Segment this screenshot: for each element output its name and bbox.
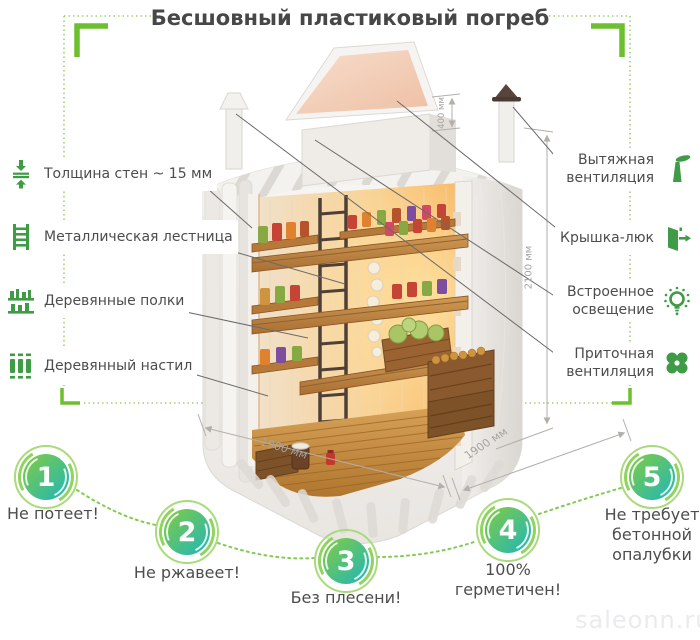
- feature-label: Встроенное освещение: [558, 283, 654, 319]
- feature-label: Толщина стен ~ 15 мм: [44, 165, 212, 183]
- watermark: saleonn.ru: [575, 606, 700, 634]
- feature-label: Крышка-люк: [560, 229, 654, 247]
- feature-shelves: Деревянные полки: [6, 284, 189, 318]
- benefit-label-1: Не потеет!: [7, 504, 99, 524]
- exhaust-vent-icon: [662, 154, 692, 184]
- feature-wall-thickness: Толщина стен ~ 15 мм: [6, 157, 217, 191]
- feature-label: Вытяжная вентиляция: [558, 151, 654, 187]
- feature-hatch-door: Крышка-люк: [555, 221, 692, 255]
- benefit-circle-4: 4: [476, 498, 540, 562]
- wall-thickness-icon: [6, 159, 36, 189]
- feature-label: Деревянный настил: [44, 357, 192, 375]
- feature-ladder: Металлическая лестница: [6, 220, 238, 254]
- hatch-door-icon: [662, 223, 692, 253]
- hatch: [286, 42, 456, 186]
- exhaust-vent-pipe: [492, 84, 521, 162]
- feature-decking: Деревянный настил: [6, 349, 197, 383]
- supply-vent-icon: [662, 348, 692, 378]
- page-title: Бесшовный пластиковый погреб: [0, 6, 700, 30]
- benefit-circle-2: 2: [155, 500, 219, 564]
- feature-lighting: Встроенное освещение: [553, 281, 692, 321]
- benefit-label-5: Не требует бетонной опалубки: [597, 505, 700, 565]
- feature-exhaust-vent: Вытяжная вентиляция: [553, 149, 692, 189]
- benefit-circle-3: 3: [314, 529, 378, 593]
- feature-label: Приточная вентиляция: [558, 345, 654, 381]
- potato-crates: [428, 347, 494, 438]
- supply-vent-pipe: [220, 93, 248, 169]
- benefit-circle-1: 1: [14, 445, 78, 509]
- benefit-label-3: Без плесени!: [290, 588, 402, 608]
- infographic: Бесшовный пластиковый погреб Толщина сте…: [0, 0, 700, 640]
- dimension-hatch-height: 400 мм: [437, 91, 447, 135]
- dimension-body-height: 2100 мм: [524, 242, 535, 294]
- feature-label: Деревянные полки: [44, 292, 184, 310]
- benefit-circle-5: 5: [620, 445, 684, 509]
- lighting-icon: [662, 286, 692, 316]
- ladder-icon: [6, 222, 36, 252]
- feature-supply-vent: Приточная вентиляция: [553, 343, 692, 383]
- benefit-label-4: 100% герметичен!: [433, 560, 583, 600]
- benefit-label-2: Не ржавеет!: [132, 563, 242, 583]
- feature-label: Металлическая лестница: [44, 228, 233, 246]
- decking-icon: [6, 351, 36, 381]
- shelves-icon: [6, 286, 36, 316]
